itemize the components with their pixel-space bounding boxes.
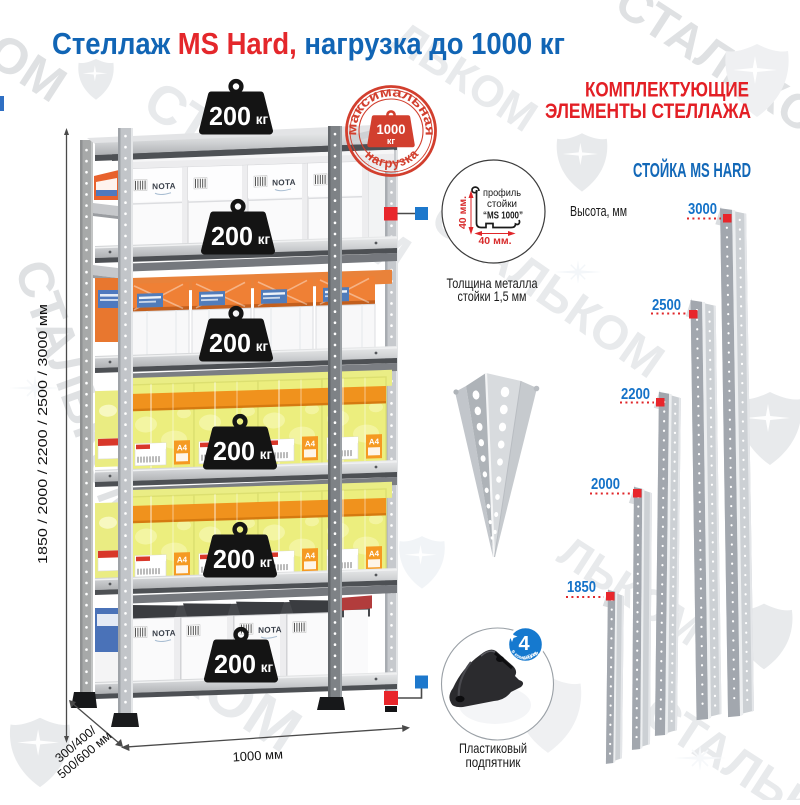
svg-text:200: 200 — [213, 436, 255, 466]
svg-text:A4: A4 — [177, 555, 188, 564]
svg-text:40 мм.: 40 мм. — [457, 196, 469, 229]
svg-text:200: 200 — [214, 649, 256, 679]
svg-text:“MS 1000”: “MS 1000” — [483, 210, 523, 222]
svg-text:кг: кг — [256, 112, 269, 127]
svg-text:200: 200 — [211, 221, 253, 251]
svg-text:2500: 2500 — [652, 297, 681, 314]
svg-text:Стеллаж MS Hard, нагрузка до 1: Стеллаж MS Hard, нагрузка до 1000 кг — [52, 26, 565, 61]
svg-text:2200: 2200 — [621, 386, 650, 403]
svg-text:A4: A4 — [177, 443, 188, 452]
svg-text:2000: 2000 — [591, 476, 620, 493]
svg-text:Высота, мм: Высота, мм — [570, 204, 627, 220]
svg-text:кг: кг — [261, 660, 274, 675]
svg-text:стойки: стойки — [487, 198, 517, 210]
svg-text:200: 200 — [213, 544, 255, 574]
svg-text:NOTA: NOTA — [258, 625, 282, 635]
svg-text:кг: кг — [258, 232, 271, 247]
svg-text:ЭЛЕМЕНТЫ СТЕЛЛАЖА: ЭЛЕМЕНТЫ СТЕЛЛАЖА — [545, 99, 751, 123]
svg-text:1850: 1850 — [567, 579, 596, 596]
svg-text:1000: 1000 — [377, 122, 406, 137]
svg-text:кг: кг — [260, 447, 273, 462]
svg-text:3000: 3000 — [688, 201, 717, 218]
svg-text:СТОЙКА MS HARD: СТОЙКА MS HARD — [633, 158, 751, 182]
svg-text:NOTA: NOTA — [152, 182, 176, 192]
svg-text:4: 4 — [518, 633, 530, 655]
svg-text:1850 / 2000 / 2200 / 2500 / 30: 1850 / 2000 / 2200 / 2500 / 3000 мм — [36, 304, 50, 564]
svg-text:200: 200 — [209, 101, 251, 131]
svg-text:NOTA: NOTA — [152, 629, 176, 639]
svg-text:кг: кг — [260, 555, 273, 570]
svg-text:1000 мм: 1000 мм — [232, 746, 283, 764]
svg-text:NOTA: NOTA — [272, 178, 296, 188]
svg-text:стойки 1,5 мм: стойки 1,5 мм — [458, 288, 527, 304]
svg-text:40 мм.: 40 мм. — [478, 235, 511, 247]
svg-text:кг: кг — [256, 339, 269, 354]
svg-text:A4: A4 — [369, 437, 380, 446]
svg-text:подпятник: подпятник — [466, 754, 522, 770]
svg-text:A4: A4 — [369, 549, 380, 558]
svg-text:200: 200 — [209, 328, 251, 358]
svg-text:A4: A4 — [305, 439, 316, 448]
svg-text:КОМПЛЕКТУЮЩИЕ: КОМПЛЕКТУЮЩИЕ — [585, 78, 749, 102]
svg-text:кг: кг — [387, 136, 396, 146]
svg-text:A4: A4 — [305, 551, 316, 560]
